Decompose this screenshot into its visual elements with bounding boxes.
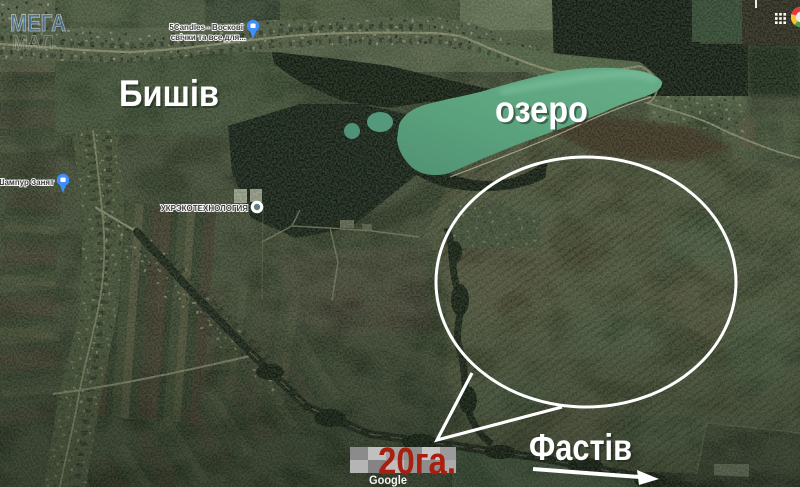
svg-text:МАЛ: МАЛ [12, 33, 54, 54]
svg-text:Шампур Занят: Шампур Занят [0, 178, 54, 187]
svg-text:озеро: озеро [495, 89, 588, 130]
svg-text:Google: Google [369, 473, 407, 487]
svg-text:УКРЭКОТЕХНОЛОГИЯ: УКРЭКОТЕХНОЛОГИЯ [161, 204, 248, 213]
svg-text:Бишів: Бишів [119, 73, 219, 114]
svg-text:Фастів: Фастів [529, 427, 632, 468]
svg-text:свічки та все для...: свічки та все для... [171, 33, 246, 42]
svg-text:5Candles - Воскові: 5Candles - Воскові [169, 23, 243, 32]
